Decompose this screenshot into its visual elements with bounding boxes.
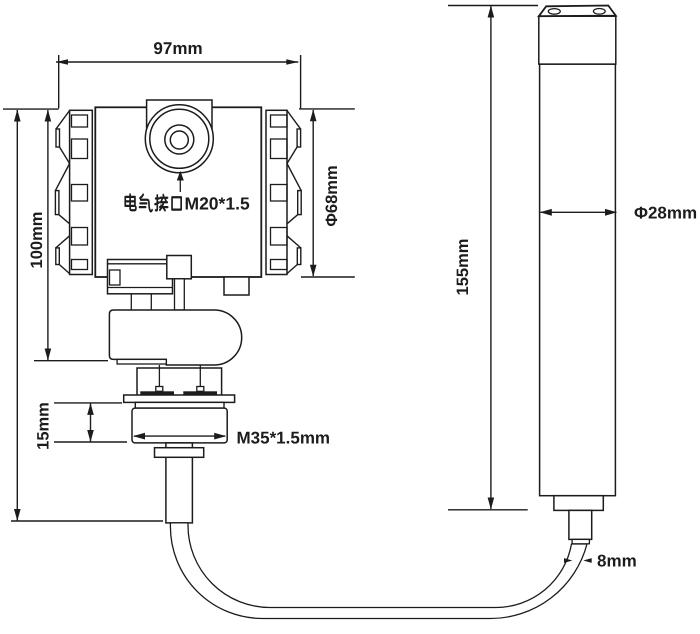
svg-text:155mm: 155mm [454,239,472,296]
svg-text:M35*1.5mm: M35*1.5mm [237,429,331,448]
svg-text:15mm: 15mm [35,402,53,450]
svg-text:8mm: 8mm [597,552,637,571]
svg-text:M20*1.5: M20*1.5 [185,194,250,214]
svg-text:Φ28mm: Φ28mm [634,204,697,223]
svg-text:97mm: 97mm [153,39,202,58]
svg-text:100mm: 100mm [28,212,46,269]
svg-text:Φ68mm: Φ68mm [323,165,341,226]
